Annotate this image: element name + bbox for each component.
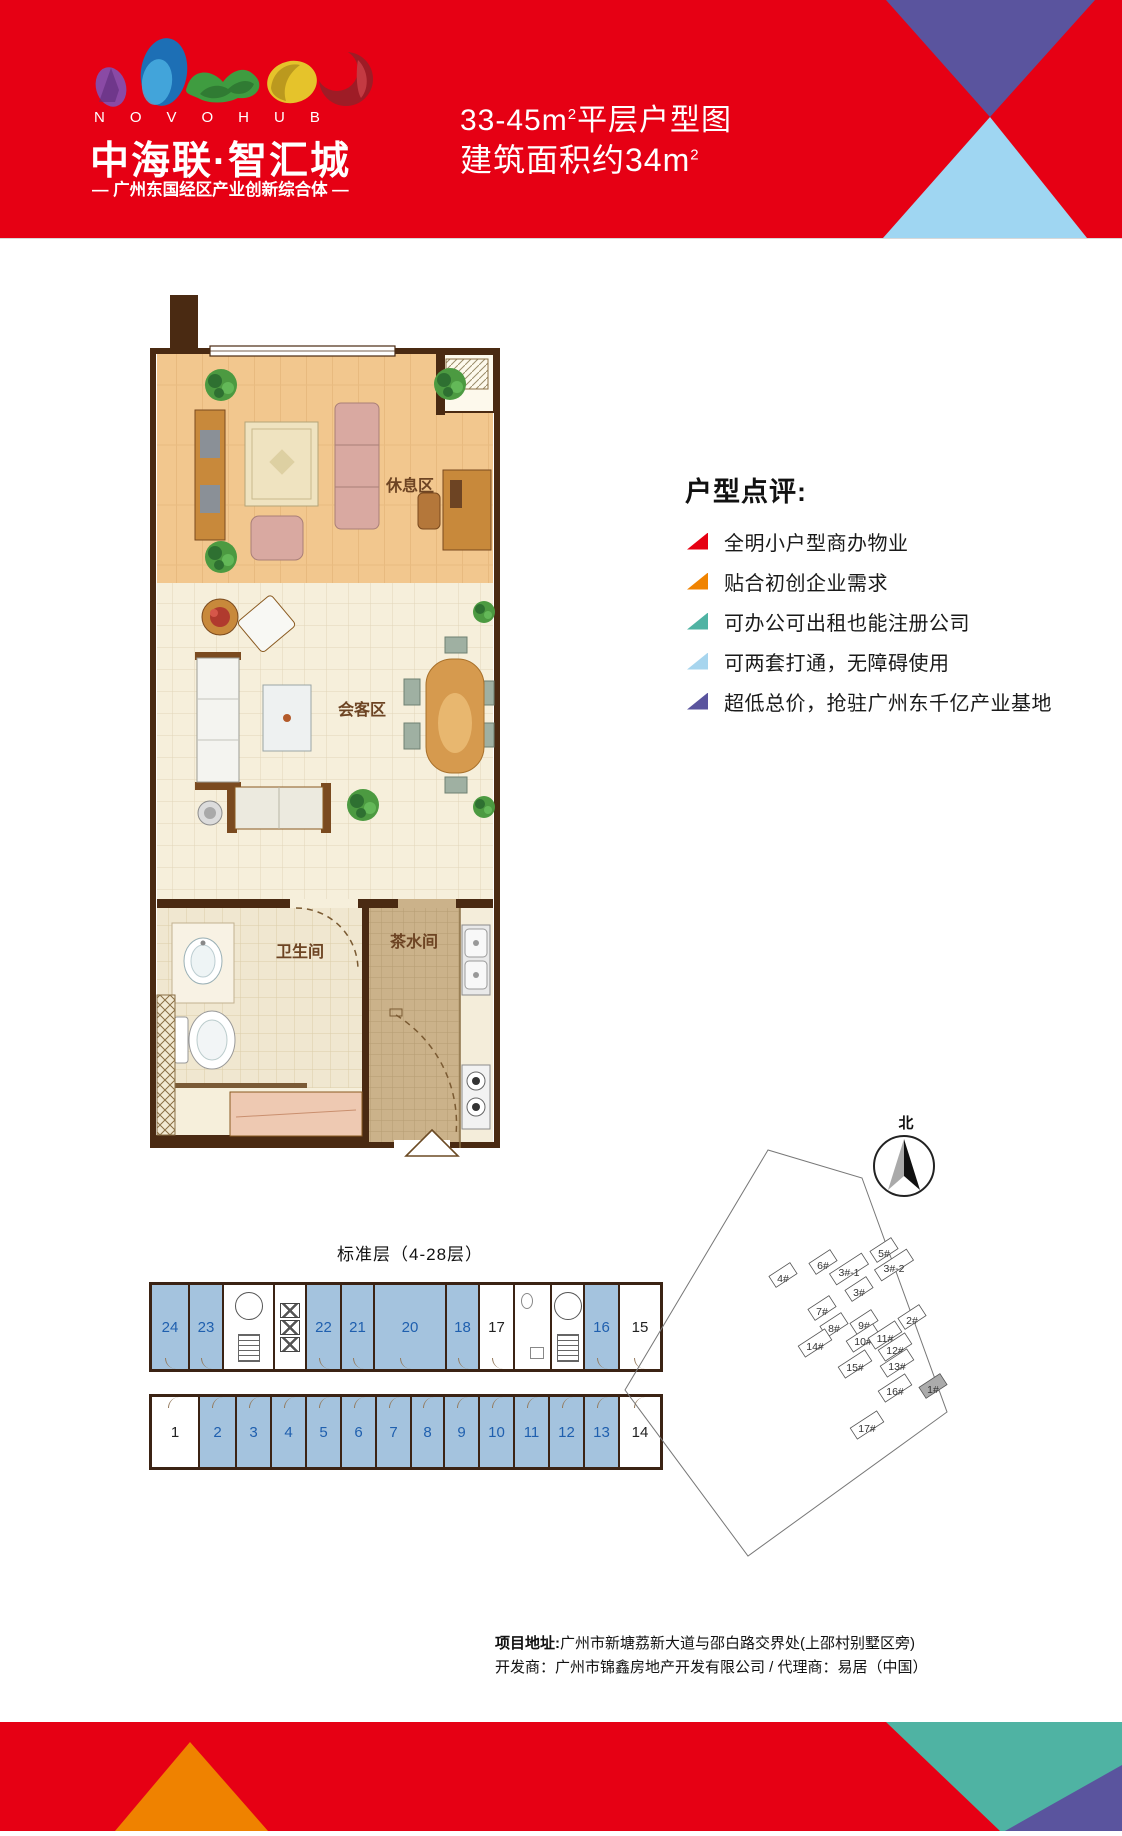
unit-cell-7: 7 [375, 1397, 410, 1467]
developer-line: 开发商：广州市锦鑫房地产开发有限公司 / 代理商：易居（中国） [495, 1656, 928, 1680]
unit-number: 9 [457, 1424, 465, 1441]
comment-text: 贴合初创企业需求 [724, 567, 888, 596]
site-building-label: 4# [777, 1273, 789, 1285]
site-building-label: 13# [888, 1361, 906, 1373]
site-building-label: 6# [817, 1260, 829, 1272]
unit-cell-22: 22 [305, 1285, 340, 1369]
purple-triangle-decor [886, 0, 1095, 117]
site-building-label: 3#-2 [883, 1263, 904, 1275]
site-building-label: 3# [853, 1287, 865, 1299]
unit-cell-24: 24 [152, 1285, 188, 1369]
header-band: NOVOHUB 中海联·智汇城 — 广州东国经区产业创新综合体 — 33-45m… [0, 0, 1122, 239]
novohub-logo-icon [88, 32, 378, 112]
unit-cell-17: 17 [478, 1285, 513, 1369]
meeting-area-label: 会客区 [338, 700, 386, 719]
unit-number: 20 [402, 1319, 419, 1336]
comments-heading: 户型点评: [685, 470, 807, 509]
footer-corner-decoration [0, 1722, 1122, 1831]
comment-text: 可两套打通，无障碍使用 [724, 647, 950, 676]
north-label: 北 [898, 1115, 913, 1132]
unit-number: 10 [488, 1424, 505, 1441]
elev-core [273, 1285, 305, 1369]
site-building-label: 15# [846, 1362, 864, 1374]
unit-number: 17 [488, 1319, 505, 1336]
bath-core [513, 1285, 550, 1369]
unit-cell-11: 11 [513, 1397, 548, 1467]
poster-page: { "header": { "logo": { "letters": "NOVO… [0, 0, 1122, 1831]
plate-top-row: 242322212018171615 [149, 1282, 663, 1372]
comment-text: 超低总价，抢驻广州东千亿产业基地 [724, 687, 1052, 716]
unit-number: 24 [162, 1319, 179, 1336]
lightblue-triangle-decor [883, 117, 1087, 238]
brand-tagline: — 广州东国经区产业创新综合体 — [92, 176, 349, 200]
unit-number: 18 [454, 1319, 471, 1336]
unit-cell-20: 20 [373, 1285, 445, 1369]
plant [347, 789, 379, 821]
unit-number: 11 [524, 1424, 540, 1441]
armchair [251, 516, 303, 560]
comment-bullet-triangle-icon [687, 653, 708, 670]
comment-item: 贴合初创企业需求 [687, 561, 1052, 601]
console-cabinet [195, 410, 225, 540]
mosaic-strip [157, 995, 175, 1135]
unit-cell-5: 5 [305, 1397, 340, 1467]
unit-cell-3: 3 [235, 1397, 270, 1467]
unit-number: 6 [354, 1424, 362, 1441]
apartment-floorplan: 休息区 会客区 卫生间 茶水间 [150, 295, 500, 1155]
white-sofa [197, 658, 239, 782]
desk-chair [418, 493, 440, 529]
comment-item: 全明小户型商办物业 [687, 521, 1052, 561]
orange-triangle-decor [115, 1742, 268, 1831]
comments-list: 全明小户型商办物业贴合初创企业需求可办公可出租也能注册公司可两套打通，无障碍使用… [687, 521, 1052, 721]
title-line2: 建筑面积约34m2 [460, 140, 732, 180]
comment-text: 全明小户型商办物业 [724, 527, 909, 556]
comment-bullet-triangle-icon [687, 573, 708, 590]
tea-room-label: 茶水间 [389, 932, 438, 951]
unit-number: 1 [171, 1424, 179, 1441]
logo-letters: NOVOHUB [94, 109, 345, 126]
unit-number: 7 [389, 1424, 397, 1441]
site-building-label: 3#-1 [838, 1267, 859, 1279]
sofa [335, 403, 379, 529]
comment-bullet-triangle-icon [687, 613, 708, 630]
comment-bullet-triangle-icon [687, 693, 708, 710]
plant [473, 796, 495, 818]
unit-cell-4: 4 [270, 1397, 305, 1467]
site-building-label: 5# [878, 1248, 890, 1260]
page-title: 33-45m2平层户型图 建筑面积约34m2 [460, 102, 732, 180]
comment-item: 可两套打通，无障碍使用 [687, 641, 1052, 681]
unit-number: 21 [349, 1319, 366, 1336]
unit-cell-1: 1 [152, 1397, 198, 1467]
entrance-marker-icon [400, 1126, 464, 1160]
rest-area-label: 休息区 [385, 476, 434, 495]
site-plan: 4#6#3#-15#3#-23#7#2#8#9#10#11#12#14#15#1… [610, 1090, 960, 1570]
unit-number: 16 [593, 1319, 610, 1336]
address-value: 广州市新塘荔新大道与邵白路交界处(上邵村别墅区旁) [560, 1635, 915, 1652]
unit-number: 3 [249, 1424, 257, 1441]
plant [205, 541, 237, 573]
unit-cell-2: 2 [198, 1397, 235, 1467]
unit-number: 23 [198, 1319, 215, 1336]
unit-cell-9: 9 [443, 1397, 478, 1467]
plant [205, 369, 237, 401]
unit-cell-10: 10 [478, 1397, 513, 1467]
unit-cell-6: 6 [340, 1397, 375, 1467]
stair-core [222, 1285, 273, 1369]
unit-cell-18: 18 [445, 1285, 478, 1369]
unit-number: 8 [423, 1424, 431, 1441]
site-building-label: 2# [906, 1315, 918, 1327]
address-line: 项目地址:广州市新塘荔新大道与邵白路交界处(上邵村别墅区旁) [495, 1632, 928, 1656]
unit-number: 5 [319, 1424, 327, 1441]
unit-number: 2 [213, 1424, 221, 1441]
site-building-label: 14# [806, 1341, 824, 1353]
address-label: 项目地址: [495, 1635, 560, 1652]
footer-band [0, 1722, 1122, 1831]
plate-bottom-row: 1234567891011121314 [149, 1394, 663, 1470]
site-building-label: 8# [828, 1323, 840, 1335]
comment-bullet-triangle-icon [687, 533, 708, 550]
comment-item: 可办公可出租也能注册公司 [687, 601, 1052, 641]
comment-text: 可办公可出租也能注册公司 [724, 607, 970, 636]
unit-cell-8: 8 [410, 1397, 443, 1467]
plant [434, 368, 466, 400]
title-line1: 33-45m2平层户型图 [460, 102, 732, 140]
unit-number: 12 [558, 1424, 575, 1441]
unit-cell-21: 21 [340, 1285, 373, 1369]
site-building-label: 16# [886, 1386, 904, 1398]
site-building-label: 1# [927, 1384, 939, 1396]
standard-floor-title: 标准层（4-28层） [337, 1240, 483, 1265]
site-building-label: 17# [858, 1423, 876, 1435]
unit-cell-23: 23 [188, 1285, 222, 1369]
unit-number: 13 [593, 1424, 610, 1441]
bathroom-label: 卫生间 [276, 942, 324, 961]
unit-number: 4 [284, 1424, 292, 1441]
unit-number: 22 [315, 1319, 332, 1336]
project-info: 项目地址:广州市新塘荔新大道与邵白路交界处(上邵村别墅区旁) 开发商：广州市锦鑫… [495, 1632, 928, 1680]
comment-item: 超低总价，抢驻广州东千亿产业基地 [687, 681, 1052, 721]
north-compass-icon: 北 [874, 1115, 934, 1196]
stair-core [550, 1285, 583, 1369]
site-building-label: 7# [816, 1306, 828, 1318]
unit-cell-12: 12 [548, 1397, 583, 1467]
plant [473, 601, 495, 623]
